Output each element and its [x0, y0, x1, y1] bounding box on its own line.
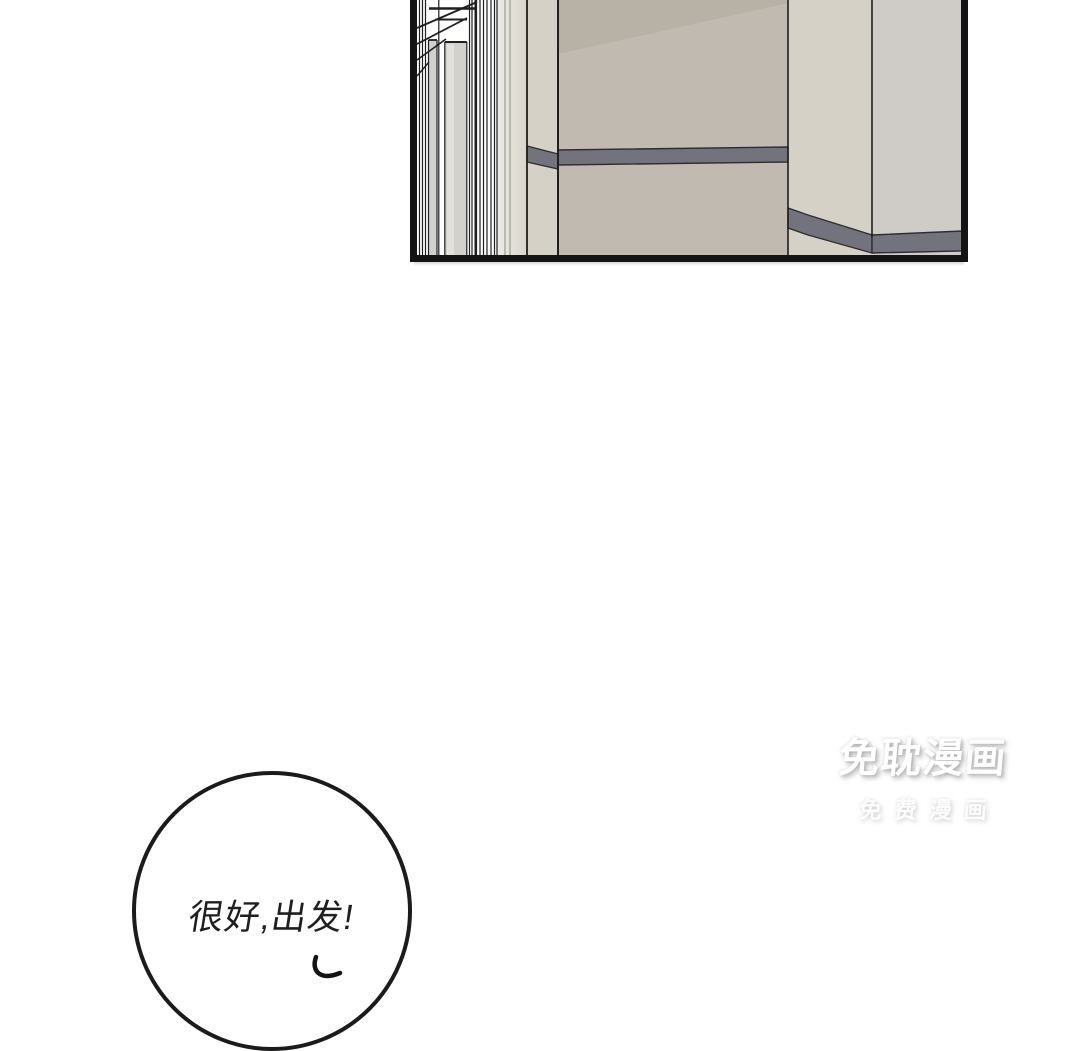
watermark-subtitle: 免费漫画: [827, 791, 1031, 825]
corridor-strip: [497, 0, 527, 255]
watermark: 免耽漫画 免费漫画: [828, 724, 1018, 825]
stripe-wall-right: [872, 231, 962, 253]
stripe-wall-center: [558, 147, 788, 165]
pen-curl-stroke: [300, 951, 364, 985]
door-panel-highlight: [447, 44, 454, 255]
panel-drop-shadow: [414, 262, 964, 266]
comic-page: 免耽漫画 免费漫画 很好,出发!: [0, 0, 1080, 984]
watermark-title: 免耽漫画: [825, 724, 1020, 784]
speech-bubble-text: 很好,出发!: [185, 889, 359, 940]
comic-panel: [410, 0, 968, 262]
door-panel-small: [429, 40, 437, 255]
wall-face-left: [527, 0, 558, 255]
wall-right: [872, 0, 962, 255]
speech-bubble: 很好,出发!: [132, 771, 412, 1051]
hallway-drawing: [410, 0, 968, 262]
